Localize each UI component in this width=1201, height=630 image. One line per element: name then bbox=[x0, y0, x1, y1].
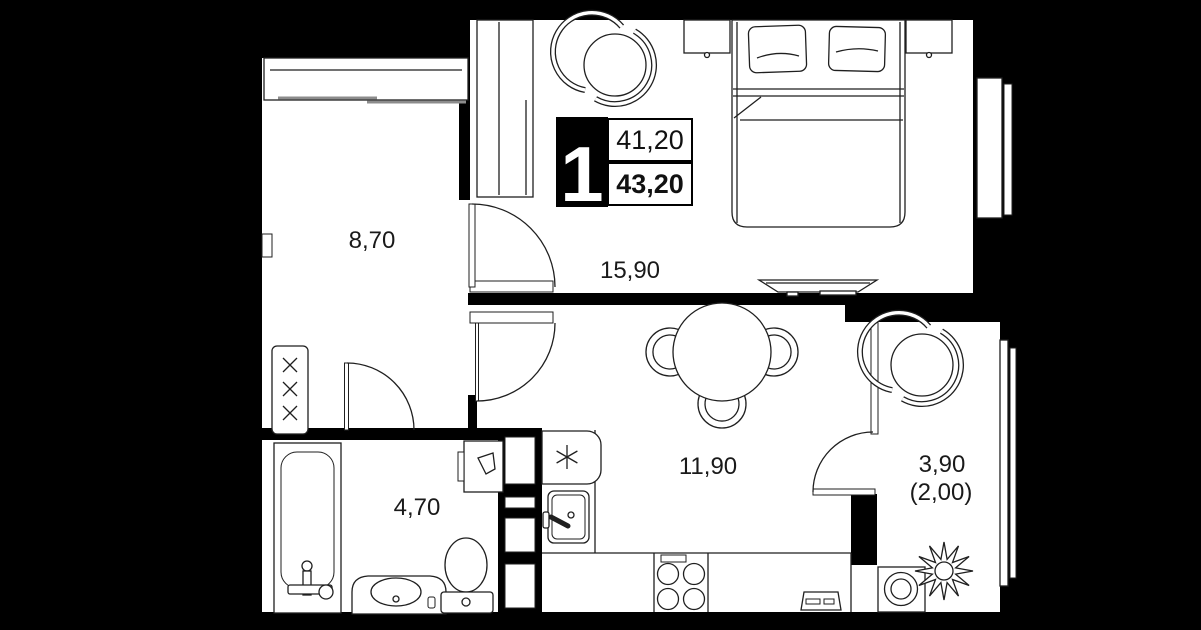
wall-hallway-top bbox=[262, 45, 468, 58]
living-door-leaf bbox=[469, 204, 475, 287]
washing-machine-bathroom-icon bbox=[458, 441, 503, 492]
badge-room-count: 1 bbox=[560, 130, 603, 218]
balcony-window-outer bbox=[1010, 348, 1016, 578]
washing-machine-balcony-icon bbox=[878, 567, 925, 612]
kitchen-door-leaf bbox=[476, 323, 479, 401]
bathroom-door-leaf bbox=[345, 363, 349, 430]
duct-shaft-3 bbox=[505, 518, 535, 552]
fridge-icon bbox=[542, 431, 601, 484]
pillow-right-icon bbox=[828, 26, 885, 71]
apartment-badge: 1 41,20 43,20 bbox=[556, 117, 692, 218]
balcony-door-leaf bbox=[813, 489, 875, 495]
wall-notch bbox=[262, 234, 272, 257]
bathtub-icon bbox=[274, 443, 341, 613]
duct-shaft-4 bbox=[505, 564, 535, 608]
duct-shaft-1 bbox=[505, 437, 535, 484]
badge-area-living: 41,20 bbox=[616, 125, 684, 155]
wall-bathroom-top-right bbox=[418, 428, 498, 440]
floor-plan: 1 41,20 43,20 8,70 15,90 11,90 4,70 3,90… bbox=[0, 0, 1201, 630]
vanity-sink-icon bbox=[352, 576, 446, 614]
label-living-room: 15,90 bbox=[600, 257, 660, 284]
duct-shaft-2 bbox=[505, 497, 535, 508]
badge-area-total: 43,20 bbox=[616, 169, 684, 199]
wall-balcony-partition bbox=[851, 494, 877, 565]
label-balcony-coef: (2,00) bbox=[910, 479, 973, 506]
threshold-living-door bbox=[470, 281, 553, 292]
bed-icon bbox=[732, 20, 905, 227]
label-kitchen: 11,90 bbox=[679, 453, 737, 480]
hallway-wardrobe-icon bbox=[264, 58, 468, 102]
balcony-window bbox=[1000, 340, 1008, 586]
bedroom-window-outer bbox=[1004, 84, 1012, 215]
bedroom-window bbox=[977, 78, 1002, 218]
threshold-kitchen-door bbox=[470, 312, 553, 323]
wall-hallway-living bbox=[459, 8, 470, 200]
label-balcony: 3,90 bbox=[919, 451, 966, 478]
nightstand-right-icon bbox=[906, 20, 952, 58]
nightstand-left-icon bbox=[684, 20, 730, 58]
kitchen-sink-icon bbox=[543, 491, 589, 543]
pillow-left-icon bbox=[748, 25, 807, 73]
radiator-rack-icon bbox=[272, 346, 308, 434]
wall-bottom bbox=[262, 612, 1000, 630]
dining-table-icon bbox=[673, 303, 771, 401]
label-bathroom: 4,70 bbox=[394, 494, 441, 521]
bedroom-wardrobe-icon bbox=[477, 20, 533, 197]
label-hallway: 8,70 bbox=[349, 227, 396, 254]
wall-right-block bbox=[845, 298, 977, 322]
floor-plan-canvas: 1 41,20 43,20 8,70 15,90 11,90 4,70 3,90… bbox=[0, 0, 1201, 630]
countertop-appliance-icon bbox=[801, 592, 841, 610]
wall-top bbox=[468, 8, 977, 20]
